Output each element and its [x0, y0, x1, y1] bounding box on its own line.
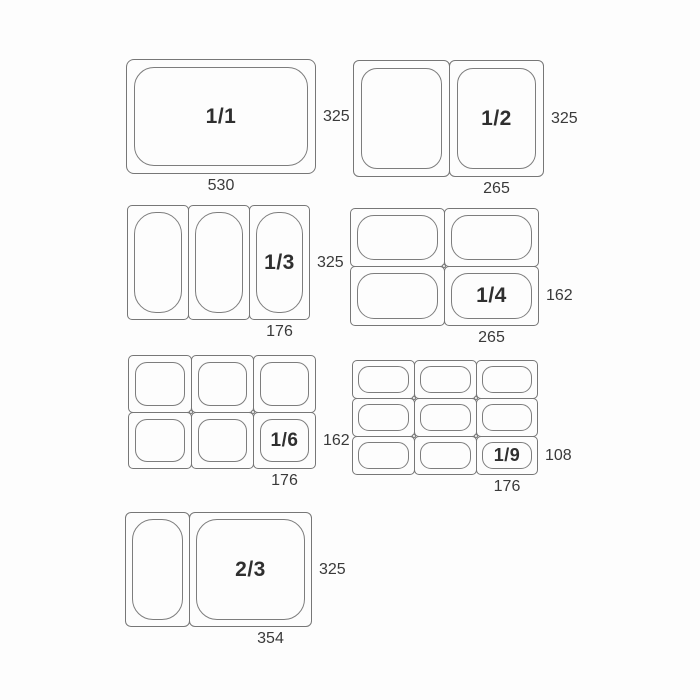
pan-inner-outline: [198, 362, 247, 406]
pan-inner-outline: [135, 362, 185, 406]
junction-dot: [474, 396, 478, 400]
pan-cell: [125, 512, 190, 627]
height-dimension-label: 325: [323, 109, 350, 125]
pan-inner-outline: [132, 519, 183, 620]
pan-cell: [414, 360, 477, 399]
pan-cell: [127, 205, 189, 320]
pan-cell: [476, 360, 538, 399]
height-dimension-label: 325: [319, 562, 346, 578]
pan-cell: [414, 436, 477, 475]
height-dimension-label: 108: [545, 448, 572, 464]
pan-size-label: 1/3: [264, 251, 295, 275]
pan-cell: [128, 355, 192, 413]
pan-group-1-3: 1/3325176: [127, 205, 310, 320]
pan-cell: [350, 266, 445, 326]
pan-inner-outline: [420, 404, 471, 431]
width-dimension-label: 265: [483, 181, 510, 197]
junction-dot: [474, 434, 478, 438]
pan-cell: 1/9: [476, 436, 538, 475]
pan-cell: [414, 398, 477, 437]
pan-inner-outline: [482, 404, 532, 431]
width-dimension-label: 265: [478, 330, 505, 346]
junction-dot: [251, 410, 255, 414]
pan-cell: [353, 60, 450, 177]
pan-inner-outline: 1/6: [260, 419, 309, 462]
pan-size-label: 1/4: [476, 284, 507, 308]
pan-inner-outline: [482, 366, 532, 393]
pan-group-1-9: 1/9108176: [352, 360, 538, 475]
height-dimension-label: 325: [317, 255, 344, 271]
pan-inner-outline: [420, 442, 471, 469]
junction-dot: [412, 396, 416, 400]
pan-inner-outline: [357, 215, 438, 260]
pan-cell: 1/4: [444, 266, 539, 326]
height-dimension-label: 325: [551, 111, 578, 127]
pan-group-1-4: 1/4162265: [350, 208, 539, 326]
pan-inner-outline: [420, 366, 471, 393]
pan-inner-outline: [451, 215, 532, 260]
pan-inner-outline: [198, 419, 247, 462]
pan-cell: [444, 208, 539, 267]
pan-cell: [352, 398, 415, 437]
pan-inner-outline: [361, 68, 442, 169]
pan-inner-outline: [260, 362, 309, 406]
pan-cell: [352, 360, 415, 399]
height-dimension-label: 162: [546, 288, 573, 304]
junction-dot: [412, 434, 416, 438]
pan-cell: [191, 355, 254, 413]
pan-inner-outline: 1/3: [256, 212, 303, 313]
pan-inner-outline: [195, 212, 243, 313]
pan-cell: [128, 412, 192, 469]
pan-cell: 1/1: [126, 59, 316, 174]
pan-group-2-3: 2/3325354: [125, 512, 312, 627]
pan-inner-outline: 2/3: [196, 519, 305, 620]
pan-cell: [476, 398, 538, 437]
width-dimension-label: 176: [266, 324, 293, 340]
height-dimension-label: 162: [323, 433, 350, 449]
pan-cell: [352, 436, 415, 475]
pan-inner-outline: [358, 404, 409, 431]
pan-size-label: 1/2: [481, 107, 512, 131]
pan-inner-outline: 1/9: [482, 442, 532, 469]
width-dimension-label: 530: [208, 178, 235, 194]
junction-dot: [189, 410, 193, 414]
width-dimension-label: 176: [271, 473, 298, 489]
pan-inner-outline: [357, 273, 438, 319]
pan-cell: [188, 205, 250, 320]
pan-group-1-1: 1/1325530: [126, 59, 316, 174]
pan-group-1-6: 1/6162176: [128, 355, 316, 469]
gastronorm-pan-size-diagram: 1/13255301/23252651/33251761/41622651/61…: [0, 0, 700, 700]
pan-inner-outline: 1/2: [457, 68, 536, 169]
pan-cell: 1/3: [249, 205, 310, 320]
pan-cell: 1/6: [253, 412, 316, 469]
pan-inner-outline: [135, 419, 185, 462]
pan-size-label: 1/1: [206, 105, 237, 129]
pan-cell: [350, 208, 445, 267]
width-dimension-label: 176: [494, 479, 521, 495]
pan-cell: [253, 355, 316, 413]
pan-cell: [191, 412, 254, 469]
junction-dot: [442, 264, 446, 268]
pan-group-1-2: 1/2325265: [353, 60, 544, 177]
pan-cell: 2/3: [189, 512, 312, 627]
pan-size-label: 1/9: [494, 445, 521, 466]
pan-inner-outline: [358, 366, 409, 393]
width-dimension-label: 354: [257, 631, 284, 647]
pan-size-label: 1/6: [271, 430, 299, 452]
pan-inner-outline: [134, 212, 182, 313]
pan-inner-outline: 1/1: [134, 67, 308, 166]
pan-size-label: 2/3: [235, 558, 266, 582]
pan-inner-outline: 1/4: [451, 273, 532, 319]
pan-inner-outline: [358, 442, 409, 469]
pan-cell: 1/2: [449, 60, 544, 177]
